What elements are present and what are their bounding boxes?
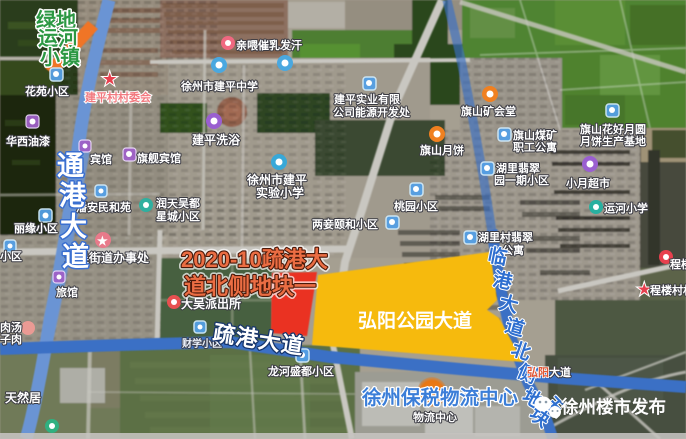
svg-text:大道: 大道 <box>549 365 571 379</box>
svg-text:★: ★ <box>97 234 108 248</box>
svg-text:湖里村翡翠: 湖里村翡翠 <box>478 230 533 244</box>
svg-text:宾馆: 宾馆 <box>90 152 112 166</box>
svg-text:徐州市建平: 徐州市建平 <box>246 172 307 187</box>
svg-text:建平村村委会: 建平村村委会 <box>85 90 152 104</box>
svg-text:物流中心: 物流中心 <box>413 410 457 424</box>
svg-text:桃园小区: 桃园小区 <box>394 199 438 213</box>
svg-text:小月超市: 小月超市 <box>565 176 610 190</box>
svg-text:道北侧地块一: 道北侧地块一 <box>184 274 316 299</box>
svg-text:程楼: 程楼 <box>670 257 686 271</box>
svg-text:丽缘小区: 丽缘小区 <box>14 221 58 235</box>
svg-text:小区: 小区 <box>0 249 22 263</box>
svg-text:旗山月饼: 旗山月饼 <box>420 143 464 157</box>
svg-text:旅馆: 旅馆 <box>56 285 78 299</box>
svg-text:花苑小区: 花苑小区 <box>25 84 69 98</box>
svg-text:港: 港 <box>59 181 87 211</box>
svg-text:旗山煤矿: 旗山煤矿 <box>513 128 557 142</box>
svg-text:大: 大 <box>60 212 87 242</box>
svg-text:程楼村村委: 程楼村村委 <box>650 283 686 297</box>
svg-text:2020-10疏港大: 2020-10疏港大 <box>181 247 328 272</box>
svg-text:道: 道 <box>62 241 89 272</box>
svg-text:弘阳公园大道: 弘阳公园大道 <box>358 309 472 332</box>
svg-text:亲喂催乳发汗: 亲喂催乳发汗 <box>236 38 302 52</box>
svg-text:实验小学: 实验小学 <box>256 185 304 200</box>
svg-text:润天吴都: 润天吴都 <box>156 196 200 210</box>
svg-text:徐州市建平中学: 徐州市建平中学 <box>180 79 258 93</box>
svg-text:小镇: 小镇 <box>40 45 80 69</box>
svg-text:肉汤: 肉汤 <box>0 320 22 334</box>
svg-text:建平实业有限: 建平实业有限 <box>334 92 400 106</box>
svg-text:徐州保税物流中心: 徐州保税物流中心 <box>361 386 519 409</box>
svg-text:园一期小区: 园一期小区 <box>494 173 549 187</box>
svg-text:公司能源开发处: 公司能源开发处 <box>333 105 411 119</box>
svg-text:湖里翡翠: 湖里翡翠 <box>496 161 540 175</box>
svg-text:旗山矿会堂: 旗山矿会堂 <box>461 104 516 118</box>
svg-text:运河小学: 运河小学 <box>604 201 648 215</box>
svg-text:旗山花好月圆: 旗山花好月圆 <box>580 122 646 136</box>
svg-text:两妾颐和小区: 两妾颐和小区 <box>312 217 378 231</box>
svg-text:星城小区: 星城小区 <box>156 209 200 223</box>
svg-text:★: ★ <box>103 71 117 88</box>
svg-text:建平洗浴: 建平洗浴 <box>191 132 241 147</box>
svg-text:月饼生产基地: 月饼生产基地 <box>579 134 646 148</box>
svg-text:龙河盛都小区: 龙河盛都小区 <box>267 364 334 378</box>
svg-text:华西油漆: 华西油漆 <box>6 134 50 148</box>
svg-text:弘阳: 弘阳 <box>527 365 549 379</box>
svg-text:通: 通 <box>57 151 84 181</box>
svg-text:子肉: 子肉 <box>0 332 22 346</box>
svg-text:职工公寓: 职工公寓 <box>513 140 557 154</box>
svg-text:徐州楼市发布: 徐州楼市发布 <box>560 397 666 417</box>
svg-text:天然居: 天然居 <box>5 390 41 405</box>
svg-text:旗舰宾馆: 旗舰宾馆 <box>137 151 181 165</box>
